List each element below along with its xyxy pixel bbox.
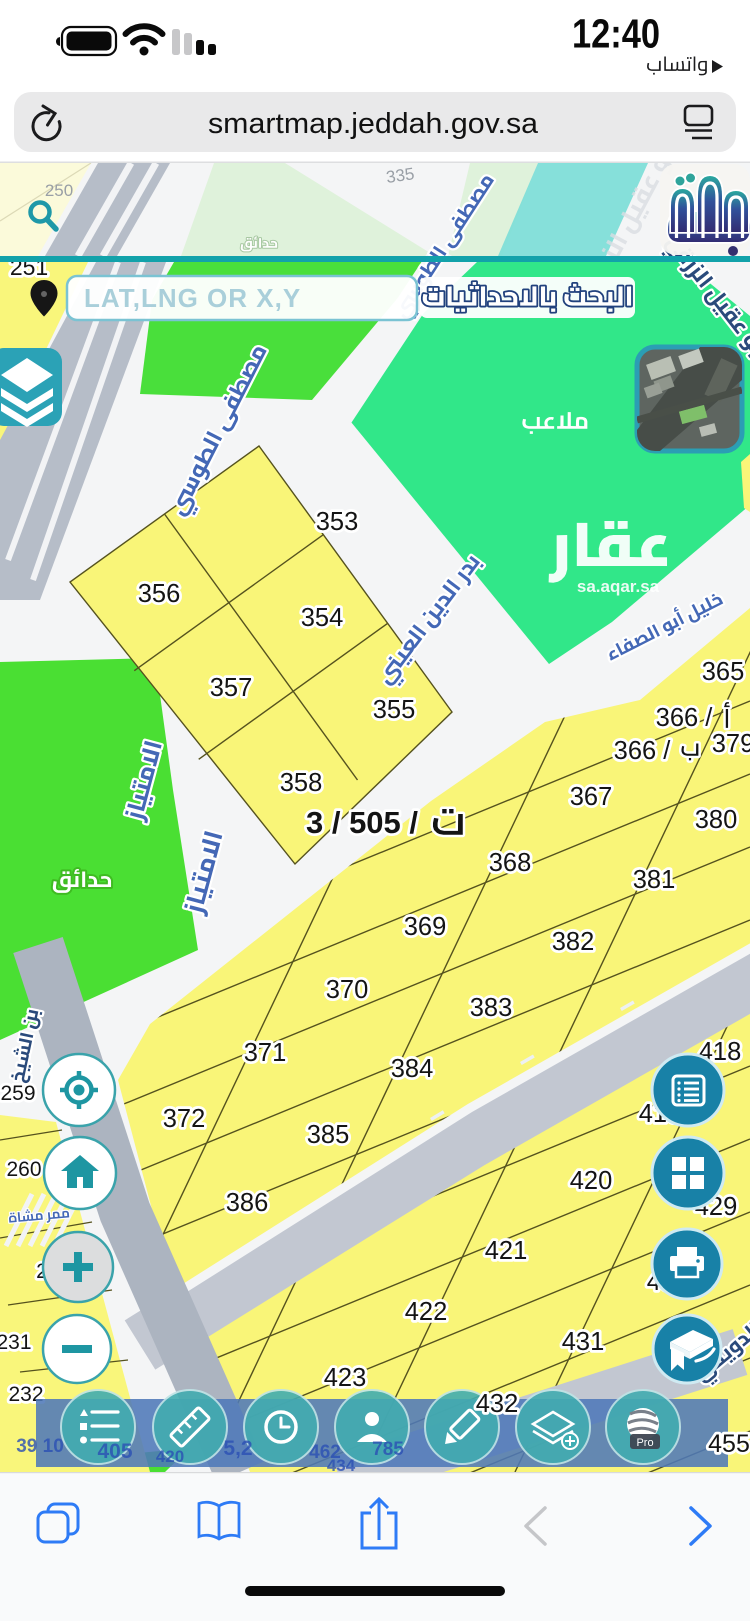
svg-text:250: 250 — [45, 181, 73, 200]
svg-text:Pro: Pro — [636, 1437, 653, 1449]
svg-text:sa.aqar.sa: sa.aqar.sa — [577, 577, 660, 596]
svg-text:367: 367 — [570, 783, 613, 811]
svg-text:231: 231 — [0, 1331, 32, 1354]
svg-text:381: 381 — [633, 866, 676, 894]
svg-text:785: 785 — [372, 1439, 404, 1460]
svg-text:358: 358 — [280, 769, 323, 797]
svg-text:421: 421 — [485, 1237, 528, 1265]
svg-text:386: 386 — [226, 1189, 269, 1217]
svg-text:420: 420 — [570, 1167, 613, 1195]
svg-text:259: 259 — [0, 1082, 35, 1105]
svg-text:423: 423 — [324, 1364, 367, 1392]
svg-text:357: 357 — [210, 674, 253, 702]
svg-text:LAT,LNG OR X,Y: LAT,LNG OR X,Y — [84, 283, 301, 313]
svg-text:455: 455 — [708, 1430, 750, 1458]
svg-text:335: 335 — [385, 164, 416, 187]
svg-text:369: 369 — [404, 913, 447, 941]
svg-text:356: 356 — [138, 580, 181, 608]
svg-text:368: 368 — [489, 849, 532, 877]
svg-text:39 10: 39 10 — [16, 1436, 64, 1457]
svg-text:379: 379 — [712, 730, 750, 758]
svg-text:370: 370 — [326, 976, 369, 1004]
svg-text:420: 420 — [156, 1447, 184, 1466]
svg-text:371: 371 — [244, 1039, 287, 1067]
svg-text:432: 432 — [476, 1390, 519, 1418]
svg-text:smartmap.jeddah.gov.sa: smartmap.jeddah.gov.sa — [208, 108, 539, 140]
svg-text:385: 385 — [307, 1121, 350, 1149]
svg-text:431: 431 — [562, 1328, 605, 1356]
svg-text:422: 422 — [405, 1298, 448, 1326]
svg-text:372: 372 — [163, 1105, 206, 1133]
svg-text:353: 353 — [316, 508, 359, 536]
svg-text:354: 354 — [301, 604, 344, 632]
svg-text:365: 365 — [702, 658, 745, 686]
svg-text:405: 405 — [97, 1440, 132, 1463]
svg-text:382: 382 — [552, 928, 595, 956]
svg-text:355: 355 — [373, 696, 416, 724]
svg-text:384: 384 — [391, 1055, 434, 1083]
svg-text:12:40: 12:40 — [572, 12, 660, 57]
svg-text:5,2: 5,2 — [223, 1437, 252, 1460]
svg-text:260: 260 — [6, 1158, 41, 1181]
svg-text:366 /: 366 / — [656, 704, 714, 732]
svg-text:380: 380 — [695, 806, 738, 834]
svg-text:366 /: 366 / — [614, 737, 672, 765]
svg-text:383: 383 — [470, 994, 513, 1022]
svg-text:3 / 505 /: 3 / 505 / — [306, 805, 418, 840]
